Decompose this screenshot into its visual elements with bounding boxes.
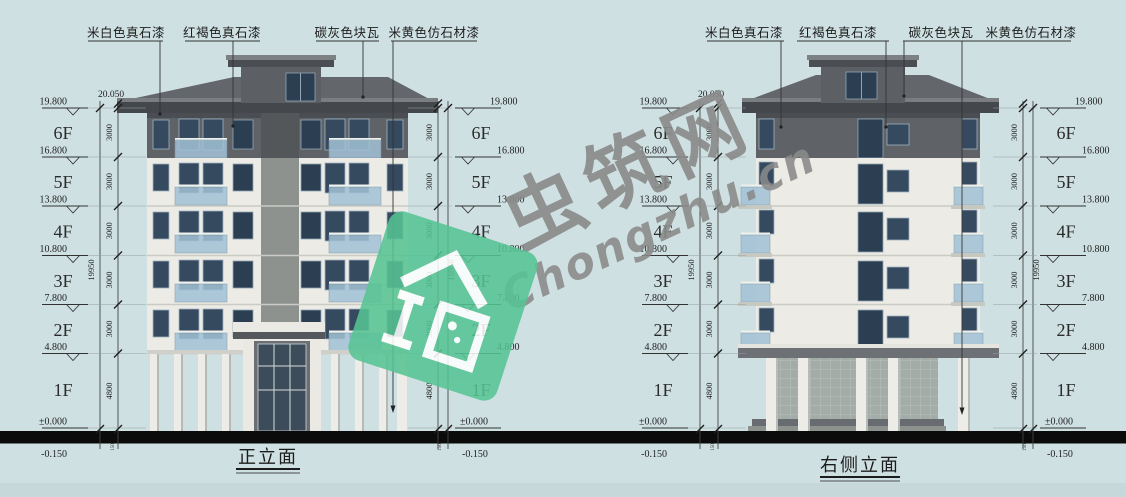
drawing-canvas: 19.800 16.800 13.800 10.800 7.800 4.800 … (0, 0, 1126, 497)
dim-floor-height: 3000 (104, 222, 114, 239)
dim-floor-height: 3000 (104, 124, 114, 141)
entrance-steps (752, 419, 944, 426)
level-label: 4.800 (45, 342, 68, 353)
material-label: 红褐色真石漆 (183, 25, 261, 40)
grid-wall (766, 358, 938, 424)
floor-label: 3F (53, 271, 72, 291)
deck-slab-top (738, 344, 999, 348)
deck-slab (738, 348, 999, 358)
tower-roof-slab (807, 55, 919, 60)
material-label: 红褐色真石漆 (799, 25, 877, 40)
dim-floor-height: 3000 (424, 173, 434, 190)
level-label: 19.800 (40, 97, 68, 108)
floor-label: 6F (471, 123, 490, 143)
entrance-portico (233, 322, 325, 431)
tower-roof-slab (226, 55, 336, 60)
side-elevation-building (738, 55, 999, 431)
ground-floor (748, 358, 970, 431)
floor-label: 5F (471, 172, 490, 192)
level-base-label: -0.150 (41, 449, 67, 460)
level-zero-label: ±0.000 (460, 417, 488, 428)
floor-label: 4F (53, 222, 72, 242)
attic-center-recess (261, 113, 299, 158)
level-label: 13.800 (40, 195, 68, 206)
level-eave-label: 20.050 (98, 90, 124, 100)
dim-floor-height: 3000 (104, 173, 114, 190)
floor-label: 2F (53, 320, 72, 340)
dim-floor-height: 3000 (424, 124, 434, 141)
material-label: 米白色真石漆 (705, 25, 783, 40)
dim-floor-height: 3000 (104, 321, 114, 338)
dim-floor-height: 3000 (104, 272, 114, 289)
level-label: 10.800 (40, 244, 68, 255)
material-label: 碳灰色块瓦 (314, 25, 379, 40)
side-elevation-title: 右侧立面 (820, 455, 900, 475)
dim-total-height: 19950 (86, 259, 96, 280)
front-elevation-title: 正立面 (238, 447, 298, 467)
level-label: 7.800 (45, 293, 68, 304)
material-label: 米白色真石漆 (87, 25, 165, 40)
dim-plinth: 150 (438, 443, 443, 451)
level-label: 16.800 (40, 146, 68, 157)
material-label: 米黄色仿石材漆 (985, 25, 1076, 40)
elevation-drawing-sheet: 19.800 16.800 13.800 10.800 7.800 4.800 … (0, 0, 1126, 497)
floor-label: 5F (53, 172, 72, 192)
entrance-door-glass (258, 344, 306, 431)
level-base-label: -0.150 (462, 449, 488, 460)
level-label: 19.800 (490, 97, 518, 108)
material-label: 米黄色仿石材漆 (388, 25, 479, 40)
level-zero-label: ±0.000 (39, 417, 67, 428)
floor-label: 6F (53, 123, 72, 143)
floor-label: 1F (53, 380, 72, 400)
ground-line-band (0, 431, 1126, 444)
bottom-strip (0, 483, 1126, 497)
roof-fascia (117, 102, 438, 113)
tower-roof-fascia (228, 60, 334, 67)
level-label: 16.800 (497, 146, 525, 157)
dim-first-floor: 4800 (104, 383, 114, 400)
dim-plinth: 150 (111, 443, 116, 451)
dim-first-floor: 4800 (424, 383, 434, 400)
material-label: 碳灰色块瓦 (908, 25, 973, 40)
